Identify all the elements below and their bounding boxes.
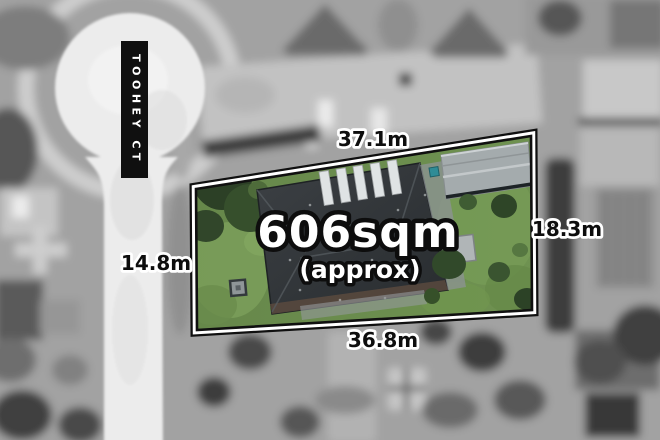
parked-car-shape bbox=[12, 196, 29, 218]
dimension-top-label: 37.1m bbox=[338, 127, 408, 151]
garden-bed-square bbox=[230, 280, 246, 296]
parked-vehicle-shape bbox=[318, 100, 333, 127]
aerial-scene: TOOHEY CT bbox=[0, 0, 660, 440]
solar-panel-array-shape bbox=[585, 393, 640, 437]
dimension-frontage-label: 14.8m bbox=[121, 251, 191, 275]
small-pool bbox=[429, 167, 439, 177]
dimension-bottom-label: 36.8m bbox=[348, 328, 418, 352]
street-name-label: TOOHEY CT bbox=[121, 41, 148, 178]
area-approx-label: (approx) bbox=[299, 255, 420, 284]
area-label: 606sqm bbox=[257, 207, 458, 258]
street-label-text: TOOHEY CT bbox=[130, 54, 143, 165]
property-lot-aerial-image: TOOHEY CT bbox=[0, 0, 660, 440]
dimension-right-label: 18.3m bbox=[532, 217, 602, 241]
